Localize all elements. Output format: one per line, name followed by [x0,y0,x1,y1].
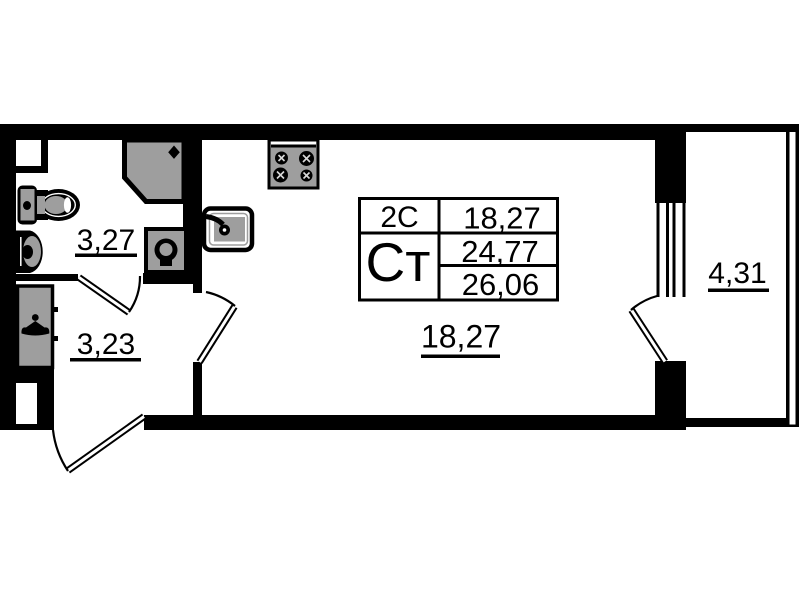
svg-text:2C: 2C [380,201,418,234]
svg-text:18,27: 18,27 [421,319,501,355]
svg-text:Ст: Ст [366,231,431,293]
svg-text:18,27: 18,27 [463,201,541,236]
svg-text:4,31: 4,31 [708,257,766,290]
svg-text:3,27: 3,27 [77,224,135,257]
svg-text:24,77: 24,77 [461,234,539,269]
svg-text:26,06: 26,06 [462,267,540,302]
svg-text:3,23: 3,23 [77,328,135,361]
